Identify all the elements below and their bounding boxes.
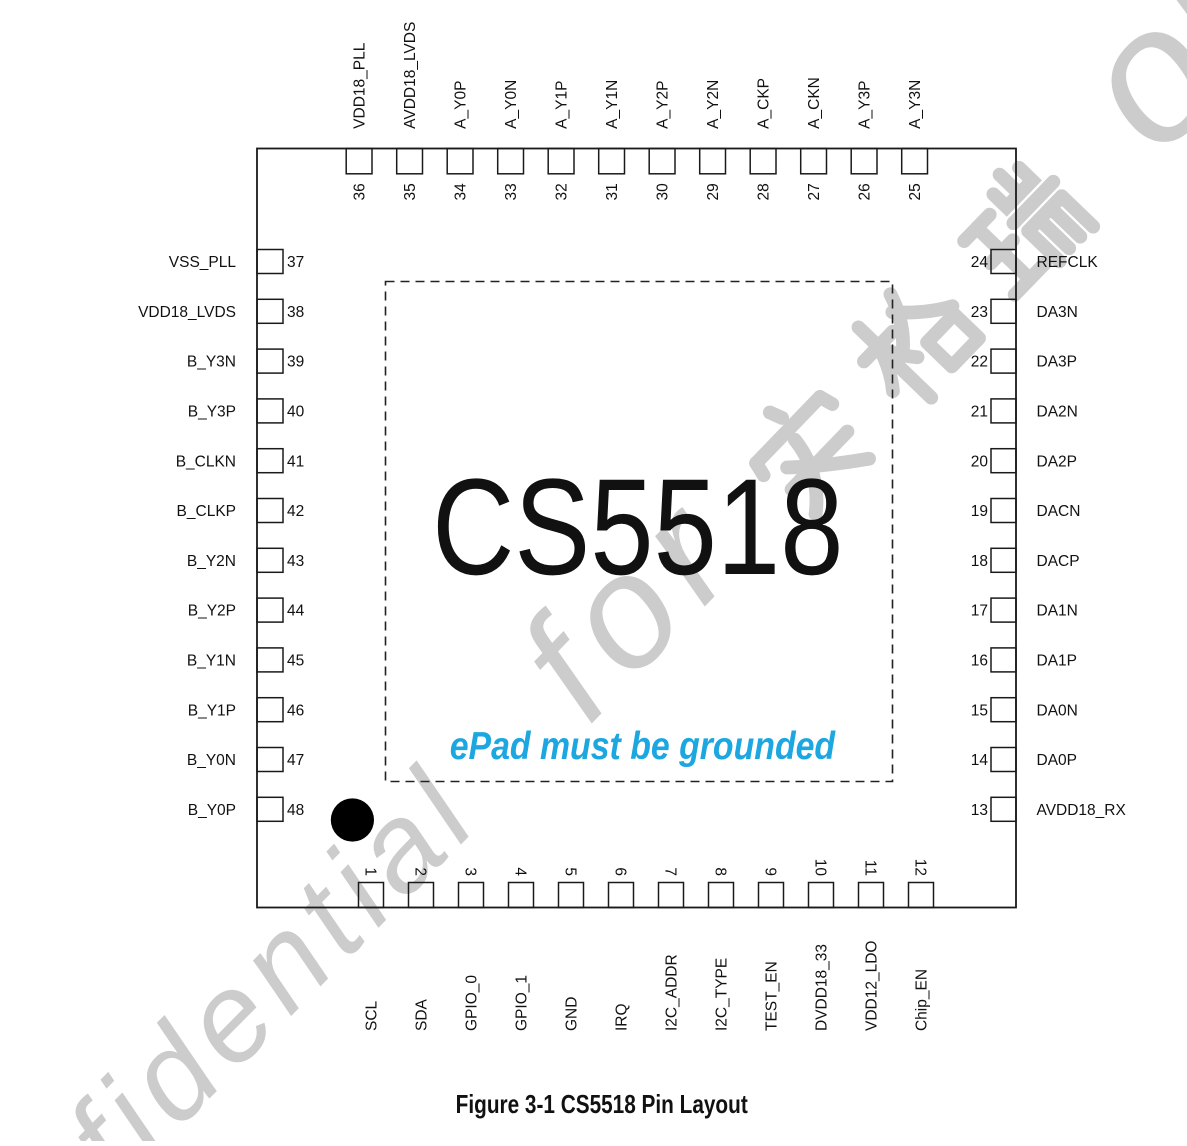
svg-text:A_Y3P: A_Y3P bbox=[857, 81, 874, 129]
svg-text:CS5518: CS5518 bbox=[432, 450, 843, 603]
svg-text:B_Y0N: B_Y0N bbox=[187, 752, 236, 769]
svg-text:27: 27 bbox=[806, 183, 823, 200]
svg-text:43: 43 bbox=[287, 553, 304, 570]
svg-text:A_CKN: A_CKN bbox=[806, 77, 823, 129]
svg-text:B_CLKN: B_CLKN bbox=[176, 453, 236, 470]
svg-text:GPIO_0: GPIO_0 bbox=[464, 975, 481, 1031]
svg-text:25: 25 bbox=[907, 183, 924, 200]
svg-text:I2C_ADDR: I2C_ADDR bbox=[664, 954, 681, 1031]
svg-text:A_Y2N: A_Y2N bbox=[705, 80, 722, 129]
svg-text:only: only bbox=[1036, 0, 1187, 189]
svg-text:B_CLKP: B_CLKP bbox=[177, 503, 236, 520]
svg-text:IRQ: IRQ bbox=[614, 1003, 631, 1031]
svg-text:I2C_TYPE: I2C_TYPE bbox=[714, 958, 731, 1031]
svg-text:45: 45 bbox=[287, 653, 304, 670]
svg-text:A_Y1N: A_Y1N bbox=[604, 80, 621, 129]
svg-text:32: 32 bbox=[554, 183, 571, 200]
svg-text:A_Y3N: A_Y3N bbox=[907, 80, 924, 129]
svg-text:A_CKP: A_CKP bbox=[756, 78, 773, 129]
svg-text:B_Y1P: B_Y1P bbox=[188, 702, 236, 719]
svg-text:DVDD18_33: DVDD18_33 bbox=[814, 944, 831, 1031]
svg-text:31: 31 bbox=[604, 183, 621, 200]
svg-text:REFCLK: REFCLK bbox=[1037, 254, 1099, 271]
svg-text:GPIO_1: GPIO_1 bbox=[514, 975, 531, 1031]
svg-text:SCL: SCL bbox=[364, 1000, 381, 1031]
svg-text:11: 11 bbox=[861, 860, 878, 876]
svg-text:DA2N: DA2N bbox=[1037, 404, 1078, 421]
svg-text:GND: GND bbox=[564, 997, 581, 1031]
svg-text:3: 3 bbox=[461, 867, 478, 876]
svg-text:1: 1 bbox=[361, 867, 378, 876]
svg-text:A_Y1P: A_Y1P bbox=[554, 81, 571, 129]
svg-text:35: 35 bbox=[402, 183, 419, 200]
svg-text:19: 19 bbox=[971, 503, 988, 520]
svg-text:DACP: DACP bbox=[1037, 553, 1080, 570]
svg-text:A_Y2P: A_Y2P bbox=[655, 81, 672, 129]
svg-text:DA0P: DA0P bbox=[1037, 752, 1078, 769]
svg-text:12: 12 bbox=[911, 859, 928, 876]
svg-text:DA3N: DA3N bbox=[1037, 304, 1078, 321]
svg-text:DA1N: DA1N bbox=[1037, 603, 1078, 620]
svg-text:30: 30 bbox=[655, 183, 672, 201]
svg-text:42: 42 bbox=[287, 503, 304, 520]
svg-text:2: 2 bbox=[411, 867, 428, 876]
svg-text:B_Y3P: B_Y3P bbox=[188, 404, 236, 421]
svg-text:44: 44 bbox=[287, 603, 305, 620]
svg-text:SDA: SDA bbox=[414, 998, 431, 1031]
svg-text:38: 38 bbox=[287, 304, 304, 321]
svg-text:B_Y3N: B_Y3N bbox=[187, 354, 236, 371]
svg-text:DA2P: DA2P bbox=[1037, 453, 1078, 470]
svg-text:16: 16 bbox=[971, 653, 988, 670]
svg-text:46: 46 bbox=[287, 702, 304, 719]
svg-text:48: 48 bbox=[287, 802, 304, 819]
svg-text:23: 23 bbox=[971, 304, 988, 321]
svg-text:10: 10 bbox=[811, 859, 828, 877]
svg-text:39: 39 bbox=[287, 354, 304, 371]
svg-text:Figure 3-1 CS5518 Pin Layout: Figure 3-1 CS5518 Pin Layout bbox=[456, 1090, 748, 1119]
svg-text:15: 15 bbox=[971, 702, 988, 719]
svg-text:26: 26 bbox=[857, 183, 874, 200]
svg-text:5: 5 bbox=[561, 867, 578, 876]
svg-text:33: 33 bbox=[503, 183, 520, 200]
svg-text:ePad must be grounded: ePad must be grounded bbox=[450, 724, 836, 768]
svg-text:VSS_PLL: VSS_PLL bbox=[169, 254, 237, 271]
svg-text:21: 21 bbox=[971, 404, 988, 421]
svg-text:4: 4 bbox=[511, 867, 528, 876]
svg-text:7: 7 bbox=[661, 867, 678, 876]
svg-text:13: 13 bbox=[971, 802, 988, 819]
svg-text:VDD18_PLL: VDD18_PLL bbox=[352, 42, 369, 129]
svg-text:28: 28 bbox=[756, 183, 773, 200]
svg-text:37: 37 bbox=[287, 254, 304, 271]
svg-text:B_Y1N: B_Y1N bbox=[187, 653, 236, 670]
svg-text:A_Y0N: A_Y0N bbox=[503, 80, 520, 129]
svg-text:29: 29 bbox=[705, 183, 722, 200]
svg-text:Confidential: Confidential bbox=[0, 740, 505, 1141]
svg-text:DACN: DACN bbox=[1037, 503, 1081, 520]
svg-text:17: 17 bbox=[971, 603, 988, 620]
svg-text:24: 24 bbox=[971, 254, 989, 271]
svg-text:AVDD18_RX: AVDD18_RX bbox=[1037, 802, 1127, 819]
svg-text:VDD18_LVDS: VDD18_LVDS bbox=[138, 304, 236, 321]
svg-text:TEST_EN: TEST_EN bbox=[764, 961, 781, 1031]
svg-text:18: 18 bbox=[971, 553, 988, 570]
svg-text:14: 14 bbox=[971, 752, 989, 769]
svg-text:22: 22 bbox=[971, 354, 988, 371]
svg-text:8: 8 bbox=[711, 867, 728, 876]
svg-text:DA3P: DA3P bbox=[1037, 354, 1078, 371]
svg-text:47: 47 bbox=[287, 752, 304, 769]
svg-text:Chip_EN: Chip_EN bbox=[914, 969, 931, 1031]
svg-text:B_Y2P: B_Y2P bbox=[188, 603, 236, 620]
svg-text:41: 41 bbox=[287, 453, 304, 470]
svg-text:DA1P: DA1P bbox=[1037, 653, 1078, 670]
svg-text:20: 20 bbox=[971, 453, 989, 470]
svg-text:AVDD18_LVDS: AVDD18_LVDS bbox=[402, 22, 419, 129]
svg-text:A_Y0P: A_Y0P bbox=[453, 81, 470, 129]
svg-text:36: 36 bbox=[352, 183, 369, 200]
svg-text:9: 9 bbox=[761, 867, 778, 876]
svg-text:34: 34 bbox=[453, 183, 470, 201]
svg-text:DA0N: DA0N bbox=[1037, 702, 1078, 719]
svg-text:B_Y0P: B_Y0P bbox=[188, 802, 236, 819]
svg-text:B_Y2N: B_Y2N bbox=[187, 553, 236, 570]
svg-text:40: 40 bbox=[287, 404, 305, 421]
svg-text:VDD12_LDO: VDD12_LDO bbox=[864, 941, 881, 1031]
svg-text:6: 6 bbox=[611, 867, 628, 876]
